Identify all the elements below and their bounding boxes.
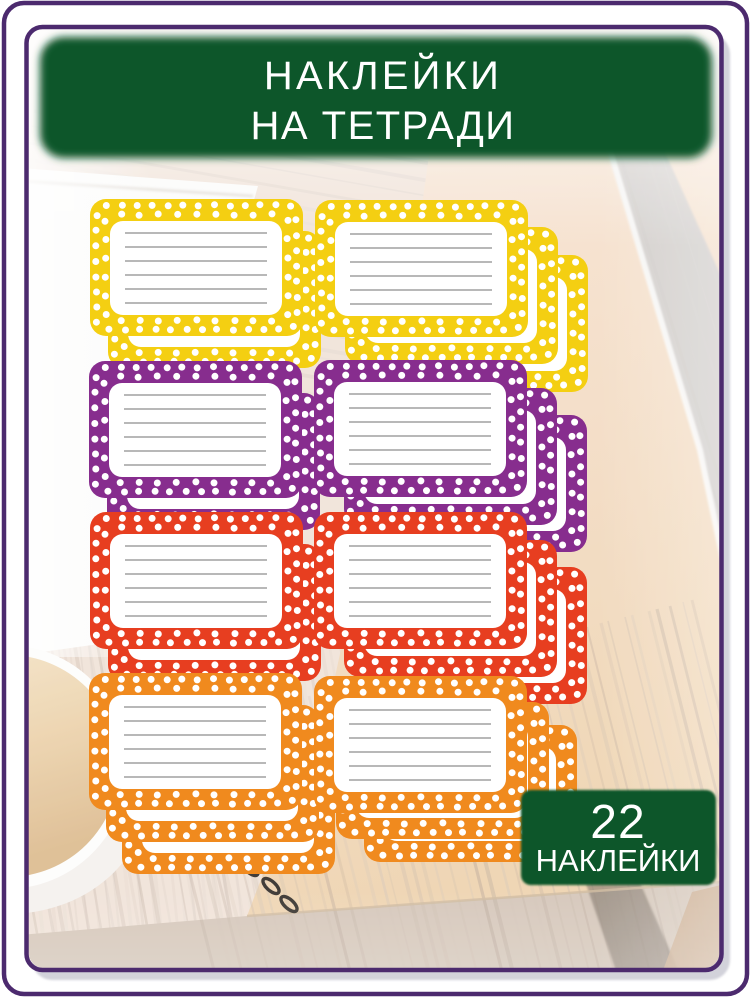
svg-text:НА ТЕТРАДИ: НА ТЕТРАДИ	[250, 104, 515, 148]
svg-text:22: 22	[590, 796, 645, 849]
svg-text:НАКЛЕЙКИ: НАКЛЕЙКИ	[264, 52, 502, 98]
svg-text:НАКЛЕЙКИ: НАКЛЕЙКИ	[536, 842, 701, 878]
